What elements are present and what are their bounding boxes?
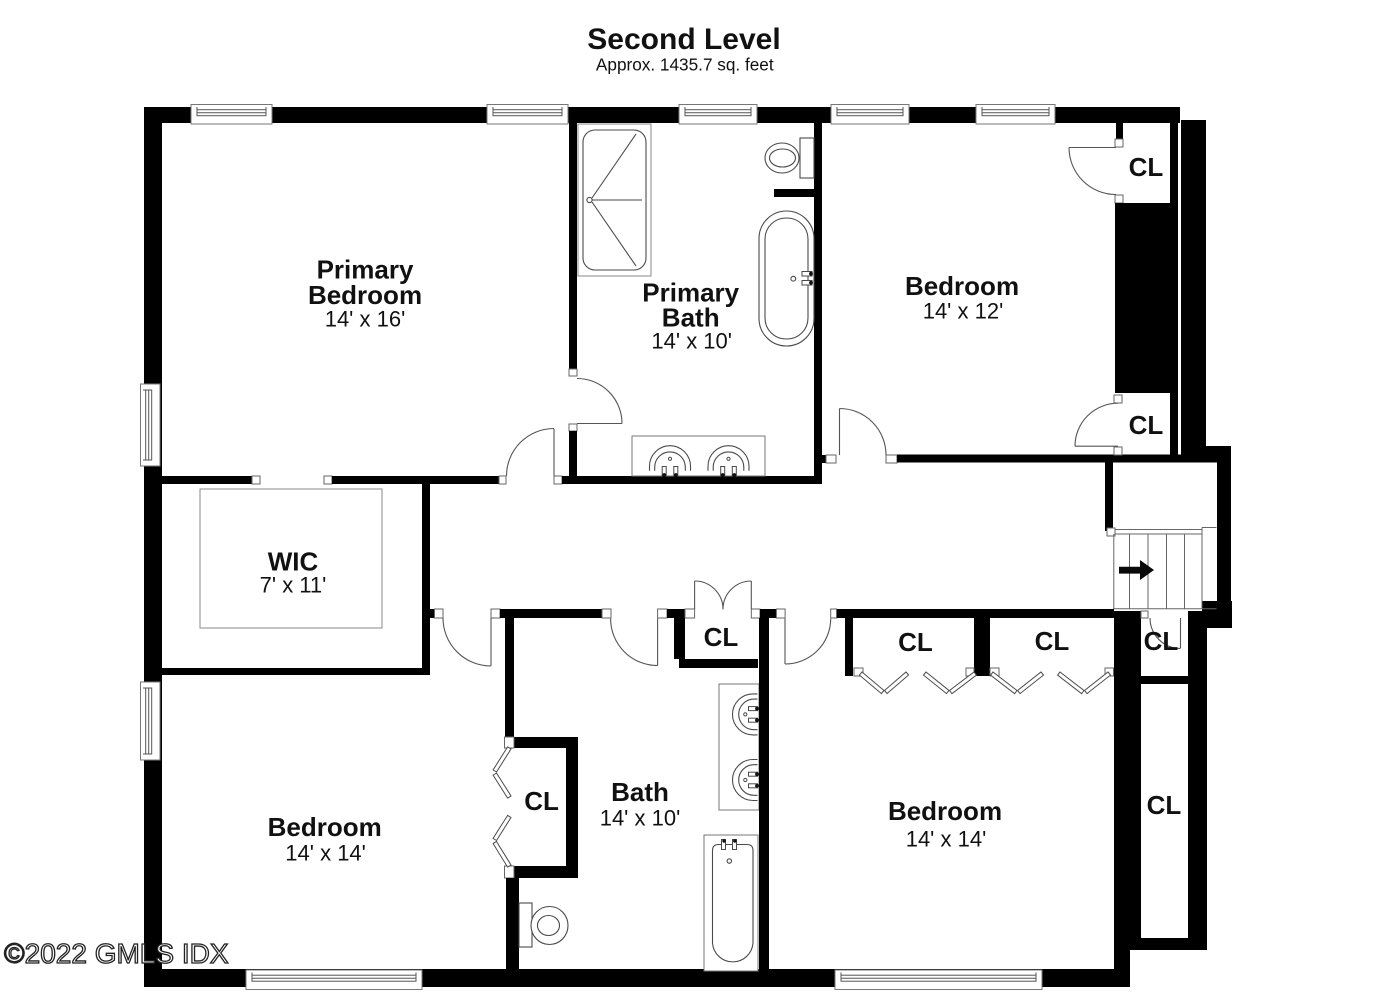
svg-text:CL: CL [898, 627, 933, 657]
svg-text:Approx. 1435.7 sq. feet: Approx. 1435.7 sq. feet [596, 55, 774, 75]
svg-text:14' x 14': 14' x 14' [285, 841, 366, 866]
svg-text:Bedroom: Bedroom [268, 812, 382, 842]
svg-text:14' x 10': 14' x 10' [651, 329, 732, 354]
svg-text:CL: CL [1129, 410, 1164, 440]
svg-text:14' x 16': 14' x 16' [325, 307, 406, 332]
svg-text:CL: CL [704, 622, 739, 652]
svg-text:©2022 GMLS IDX: ©2022 GMLS IDX [4, 938, 229, 969]
svg-text:Bedroom: Bedroom [308, 280, 422, 310]
svg-text:14' x 12': 14' x 12' [923, 299, 1004, 324]
svg-text:Second Level: Second Level [587, 23, 780, 56]
svg-text:CL: CL [1144, 626, 1179, 656]
svg-text:Bedroom: Bedroom [888, 796, 1002, 826]
svg-text:CL: CL [1035, 626, 1070, 656]
svg-text:CL: CL [1129, 152, 1164, 182]
svg-text:Bedroom: Bedroom [905, 271, 1019, 301]
svg-text:CL: CL [1147, 790, 1182, 820]
svg-text:7' x 11': 7' x 11' [260, 573, 327, 598]
svg-text:14' x 10': 14' x 10' [600, 806, 681, 831]
svg-text:Bath: Bath [611, 777, 669, 807]
svg-text:14' x 14': 14' x 14' [906, 827, 987, 852]
svg-text:CL: CL [524, 786, 559, 816]
